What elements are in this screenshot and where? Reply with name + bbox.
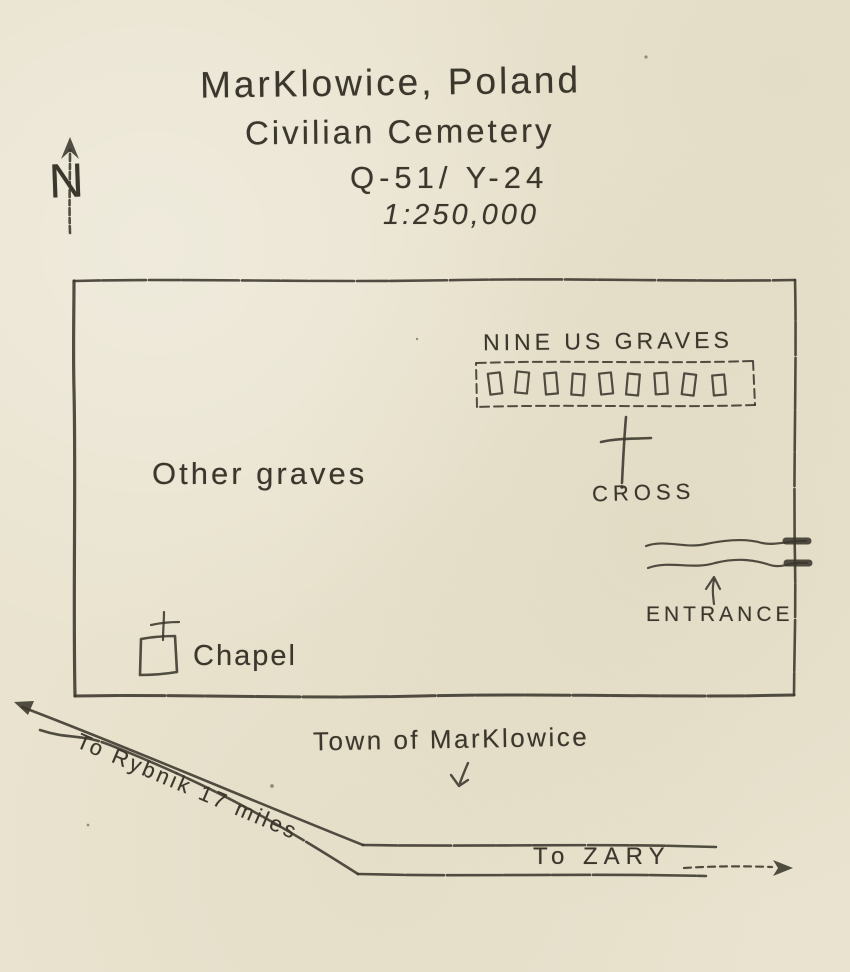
grave-marker [488,372,502,394]
scanned-map-page: MarKlowice, Poland Civilian Cemetery Q-5… [0,0,850,972]
town-arrow-icon [451,763,468,786]
other-graves-label: Other graves [152,458,367,489]
grave-marker [682,373,696,395]
chapel-building [140,612,179,675]
entrance-path-lines [646,540,809,568]
north-letter: N [48,157,84,206]
grave-marker [654,373,667,395]
zary-arrowhead-icon [773,860,793,876]
map-scale: 1:250,000 [383,201,539,230]
us-grave-markers [488,371,726,395]
grave-marker [515,371,529,393]
cross-icon [601,417,651,489]
road-zary-label: To ZARY [533,845,671,869]
rybnik-arrowhead-icon [14,701,34,715]
cross-label: CROSS [592,481,696,506]
map-title: MarKlowice, Poland [200,61,581,103]
grid-reference: Q-51/ Y-24 [350,162,548,193]
town-label: Town of MarKlowice [313,724,590,755]
grave-marker [544,373,558,395]
chapel-label: Chapel [193,642,297,671]
entrance-arrow-icon [706,577,720,604]
grave-marker [712,375,726,396]
grave-marker [571,374,584,396]
grave-marker [626,374,640,396]
entrance-label: ENTRANCE [646,604,794,625]
grave-marker [599,372,613,394]
us-graves-label: NINE US GRAVES [483,329,733,355]
map-subtitle: Civilian Cemetery [245,114,555,150]
